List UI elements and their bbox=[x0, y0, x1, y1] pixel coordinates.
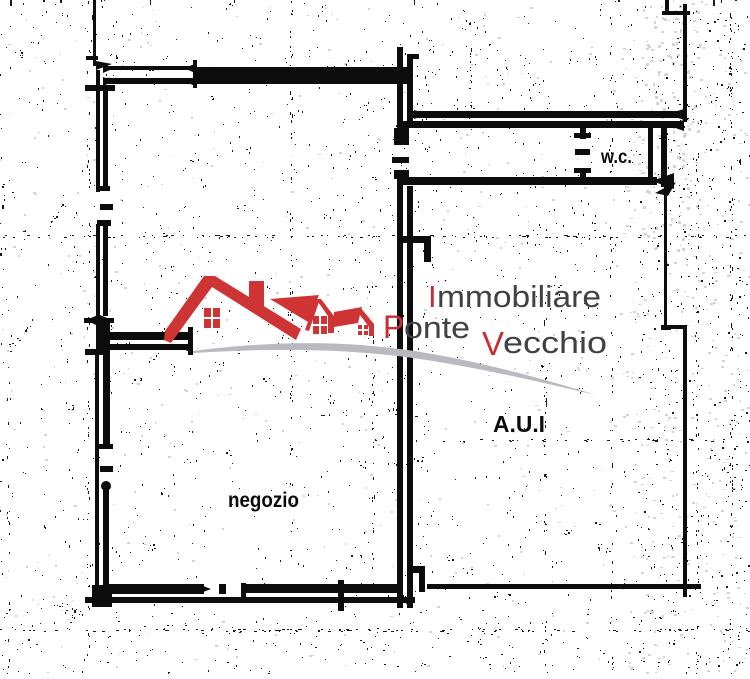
svg-text:w.c.: w.c. bbox=[600, 147, 632, 168]
svg-text:V: V bbox=[482, 325, 504, 362]
svg-text:I: I bbox=[428, 279, 437, 314]
svg-text:onte: onte bbox=[404, 310, 470, 345]
svg-text:A.U.I: A.U.I bbox=[493, 411, 545, 437]
svg-text:P: P bbox=[383, 309, 404, 345]
svg-text:negozio: negozio bbox=[228, 489, 299, 512]
svg-text:mmobiliare: mmobiliare bbox=[437, 279, 601, 314]
svg-text:ecchio: ecchio bbox=[503, 325, 607, 360]
